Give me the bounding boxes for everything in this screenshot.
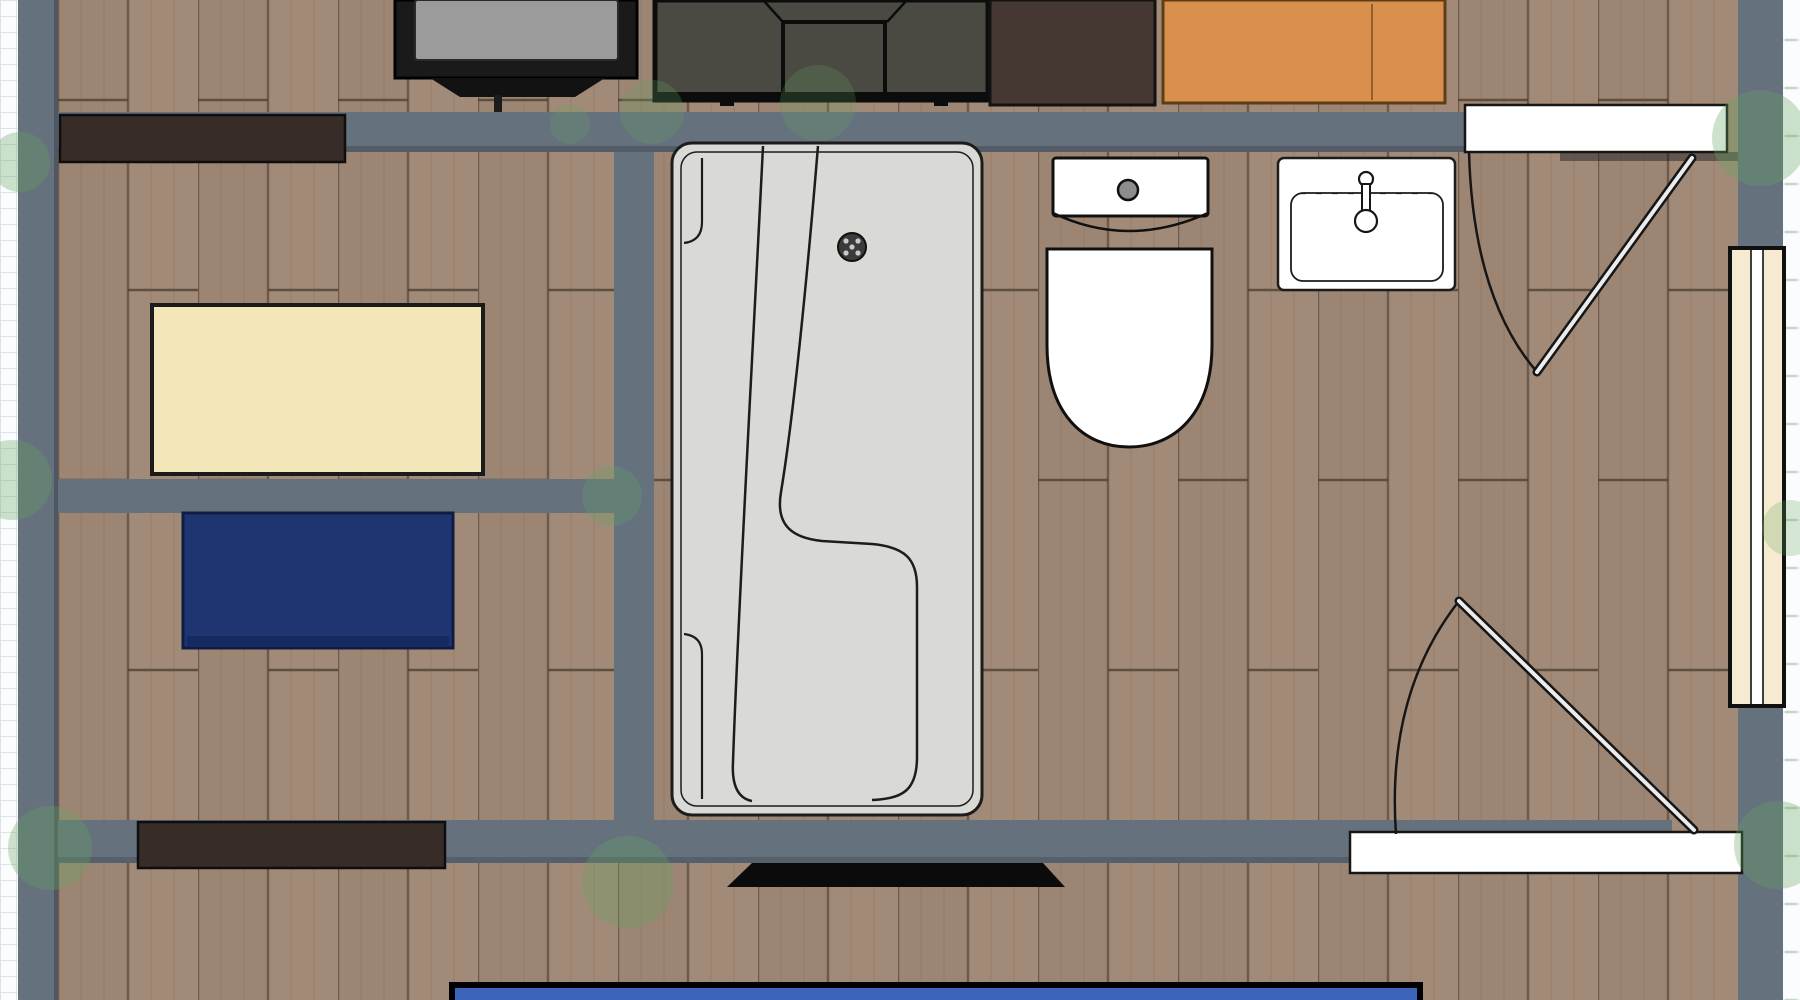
plant-blob (8, 806, 92, 890)
toilet-bowl[interactable] (1047, 249, 1212, 447)
scene-root (0, 0, 1800, 1000)
cabinet-dark-brown[interactable] (990, 0, 1155, 105)
console-top-left[interactable] (60, 115, 345, 162)
plant-blob (550, 104, 590, 144)
floorplan-svg (0, 0, 1800, 1000)
window-glass (1751, 250, 1763, 704)
plant-blob (780, 65, 856, 141)
console-bottom-left[interactable] (138, 822, 445, 868)
sink-faucet-stem (1362, 184, 1370, 211)
rug-cream[interactable] (152, 305, 483, 474)
shower-drain-hole (843, 250, 848, 255)
plant-blob (582, 836, 674, 928)
desk-navy-front-edge (187, 636, 449, 646)
shower-drain-hole (849, 244, 854, 249)
shower-drain-hole (855, 238, 860, 243)
door-bottom-leaf-closed[interactable] (1350, 832, 1742, 873)
desk-navy[interactable] (183, 513, 453, 648)
toilet-flush-button (1118, 180, 1138, 200)
tv-stand-stem (494, 95, 502, 112)
floorplan-canvas (0, 0, 1800, 1000)
wall-closet-divider (58, 479, 618, 513)
armchair-foot-left (720, 97, 734, 106)
plant-blob (582, 466, 642, 526)
floor-shadow-top-right (1560, 152, 1738, 161)
dresser-orange[interactable] (1163, 0, 1445, 103)
shower-drain-hole (843, 238, 848, 243)
shower-tray[interactable] (672, 143, 982, 815)
tv-stand-base (430, 78, 605, 97)
tv-screen[interactable] (415, 0, 618, 60)
bed-blue[interactable] (452, 985, 1420, 1000)
sink-faucet-head (1355, 210, 1377, 232)
flat-tv-bottom[interactable] (727, 863, 1065, 887)
door-top-leaf-closed[interactable] (1465, 105, 1727, 152)
plant-blob (620, 80, 684, 144)
armchair-foot-right (934, 97, 948, 106)
shower-drain-hole (855, 250, 860, 255)
